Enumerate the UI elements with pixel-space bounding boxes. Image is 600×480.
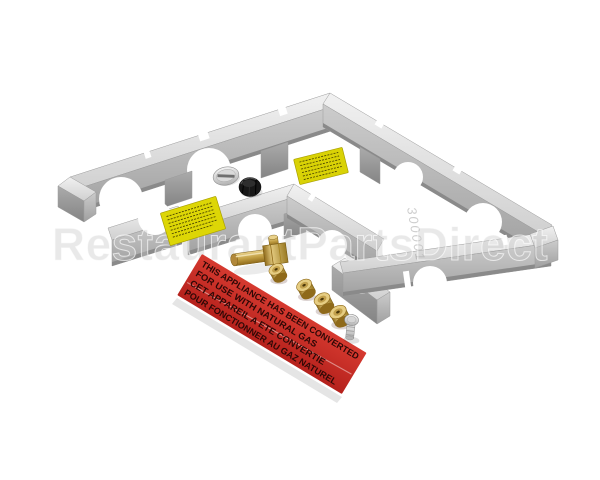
shoulder-screw: [342, 314, 362, 345]
black-cap-plug: [239, 178, 263, 198]
orifice-jet: [294, 277, 318, 302]
watermark-text: RestaurantPartsDirect: [52, 218, 548, 270]
product-photo: 300001 RestaurantPartsDirect THIS APPLIA…: [0, 0, 600, 480]
product-photo-stage: 300001 RestaurantPartsDirect THIS APPLIA…: [0, 0, 600, 480]
caution-label-right: [294, 147, 349, 184]
